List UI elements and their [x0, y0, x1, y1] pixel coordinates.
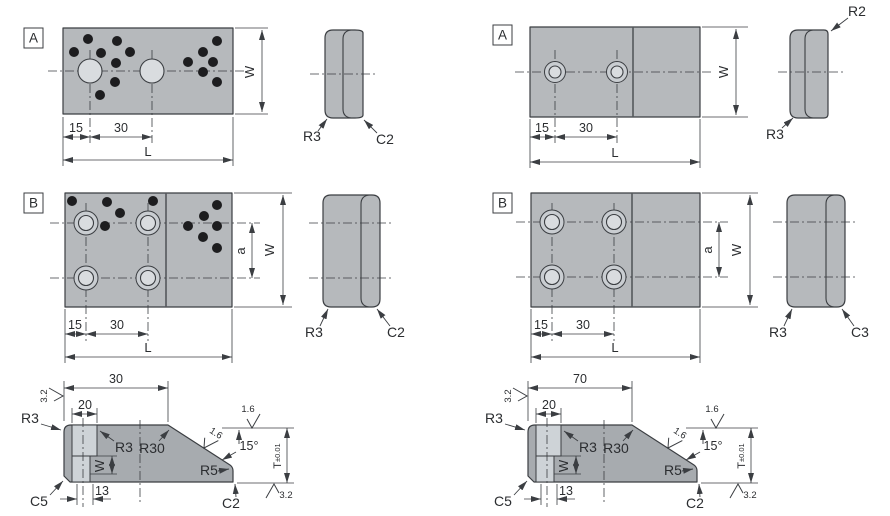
dim-13: 13 [95, 484, 109, 498]
graphite-dot [102, 197, 112, 207]
callout-r5: R5 [664, 462, 682, 478]
figure-a-left: A W 15 30 L [24, 28, 268, 166]
figure-a-left-side: R3 C2 [303, 30, 394, 147]
callout-c5: C5 [494, 493, 512, 509]
graphite-dot [212, 200, 222, 210]
callout-r3: R3 [303, 128, 321, 144]
slot-narrow [72, 456, 90, 482]
graphite-dot [95, 90, 105, 100]
finish-1_6-top: 1.6 [241, 404, 260, 428]
graphite-dot [125, 47, 135, 57]
finish-3_2-top: 3.2 [39, 388, 63, 403]
finish-3_2-bottom: 3.2 [743, 490, 756, 501]
dim-top: 30 [109, 372, 123, 386]
callout-c5: C5 [30, 493, 48, 509]
dim-20: 20 [542, 398, 556, 412]
callout-c2: C2 [387, 324, 405, 340]
dim-l: L [144, 340, 151, 355]
figure-c-left: 30 20 13 W 3.2 R3 R3 R30 1.6 1.6 15° R5 … [21, 372, 294, 511]
leader-r3-outer [505, 424, 525, 430]
callout-r3: R3 [305, 324, 323, 340]
plate-side-view [323, 195, 380, 307]
figure-b-left: B a W 15 30 L [24, 193, 292, 363]
dim-w: W [262, 243, 277, 256]
figure-b-right: B a W 15 30 L [493, 193, 758, 363]
dim-l: L [611, 340, 618, 355]
graphite-dot [199, 211, 209, 221]
graphite-dot [67, 196, 77, 206]
callout-r30: R30 [139, 440, 165, 456]
figure-a-right-side: R2 R3 [766, 3, 866, 142]
graphite-dot [208, 57, 218, 67]
finish-3_2-top: 3.2 [503, 388, 527, 403]
callout-r30: R30 [603, 440, 629, 456]
callout-c2: C2 [222, 495, 240, 511]
callout-r3: R3 [766, 126, 784, 142]
callout-r3-outer: R3 [485, 410, 503, 426]
leader-angle-slope [222, 452, 236, 460]
callout-r3-inner: R3 [115, 439, 133, 455]
finish-1_6-slope: 1.6 [200, 425, 224, 453]
graphite-dot [212, 221, 222, 231]
drawing-canvas: A W 15 30 L R3 C2 [0, 0, 890, 516]
graphite-dot [198, 232, 208, 242]
dim-30: 30 [579, 121, 593, 135]
dim-15: 15 [69, 121, 83, 135]
callout-r5: R5 [200, 462, 218, 478]
graphite-dot [111, 58, 121, 68]
graphite-dot [212, 77, 222, 87]
dim-20: 20 [78, 398, 92, 412]
graphite-dot [83, 34, 93, 44]
graphite-dot [148, 196, 158, 206]
figure-b-right-side: R3 C3 [769, 195, 869, 340]
svg-text:1.6: 1.6 [671, 425, 688, 441]
dim-top: 70 [573, 372, 587, 386]
graphite-dot [100, 221, 110, 231]
svg-text:1.6: 1.6 [241, 404, 254, 415]
leader-r3-outer [41, 424, 61, 430]
svg-text:3.2: 3.2 [503, 389, 514, 402]
dim-w: W [729, 243, 744, 256]
view-label: A [29, 31, 38, 46]
dim-a: a [233, 247, 248, 255]
dim-15: 15 [534, 318, 548, 332]
plate-side-view [787, 195, 845, 307]
dim-13: 13 [559, 484, 573, 498]
finish-3_2-bottom: 3.2 [279, 490, 292, 501]
dim-w: W [556, 459, 571, 472]
slot-wide [536, 425, 561, 456]
graphite-dot [112, 36, 122, 46]
slot-wide [72, 425, 97, 456]
dim-15: 15 [535, 121, 549, 135]
hole [78, 59, 102, 83]
view-label: B [498, 196, 507, 211]
svg-text:1.6: 1.6 [207, 425, 224, 441]
finish-1_6-slope: 1.6 [664, 425, 688, 453]
graphite-dot [212, 36, 222, 46]
callout-r3: R3 [769, 324, 787, 340]
dim-w: W [92, 459, 107, 472]
finish-3_2-bottom-mark [266, 484, 279, 498]
dim-a: a [700, 246, 715, 254]
finish-3_2-bottom-mark [730, 484, 743, 498]
graphite-dot [198, 67, 208, 77]
dim-l: L [144, 144, 151, 159]
leader-c5 [50, 481, 63, 495]
svg-text:1.6: 1.6 [705, 404, 718, 415]
leader-r2 [831, 18, 848, 31]
callout-r3-inner: R3 [579, 439, 597, 455]
hole [140, 59, 164, 83]
view-label: B [29, 196, 38, 211]
leader-c2 [364, 120, 377, 133]
finish-1_6-top: 1.6 [705, 404, 724, 428]
dim-w: W [242, 65, 257, 78]
dim-30: 30 [114, 121, 128, 135]
graphite-dot [198, 47, 208, 57]
dim-30: 30 [110, 318, 124, 332]
view-label: A [498, 28, 507, 43]
graphite-dot [212, 243, 222, 253]
dim-30: 30 [576, 318, 590, 332]
graphite-dot [69, 47, 79, 57]
callout-c2: C2 [686, 495, 704, 511]
graphite-dot [96, 48, 106, 58]
leader-c5 [514, 481, 527, 495]
graphite-dot [110, 77, 120, 87]
figure-b-left-side: R3 C2 [305, 195, 405, 340]
graphite-dot [183, 221, 193, 231]
callout-c3: C3 [851, 324, 869, 340]
dim-t-tolerance: T±0.01 [272, 443, 284, 468]
dim-l: L [611, 145, 618, 160]
svg-text:3.2: 3.2 [39, 389, 50, 402]
technical-drawing-page: A W 15 30 L R3 C2 [0, 0, 890, 516]
graphite-dot [183, 57, 193, 67]
callout-c2: C2 [376, 131, 394, 147]
slot-narrow [536, 456, 554, 482]
callout-r3-outer: R3 [21, 410, 39, 426]
figure-a-right: A W 15 30 L [493, 25, 748, 168]
callout-r2: R2 [848, 3, 866, 19]
plate-side-view [790, 30, 828, 118]
graphite-dot [115, 208, 125, 218]
dim-angle: 15° [704, 439, 723, 453]
dim-15: 15 [68, 318, 82, 332]
figure-c-right: 70 20 13 W 3.2 R3 R3 R30 1.6 1.6 15° R5 … [485, 372, 758, 511]
dim-t-tolerance: T±0.01 [736, 443, 748, 468]
dim-angle: 15° [240, 439, 259, 453]
leader-angle-slope [686, 452, 700, 460]
dim-w: W [716, 65, 731, 78]
